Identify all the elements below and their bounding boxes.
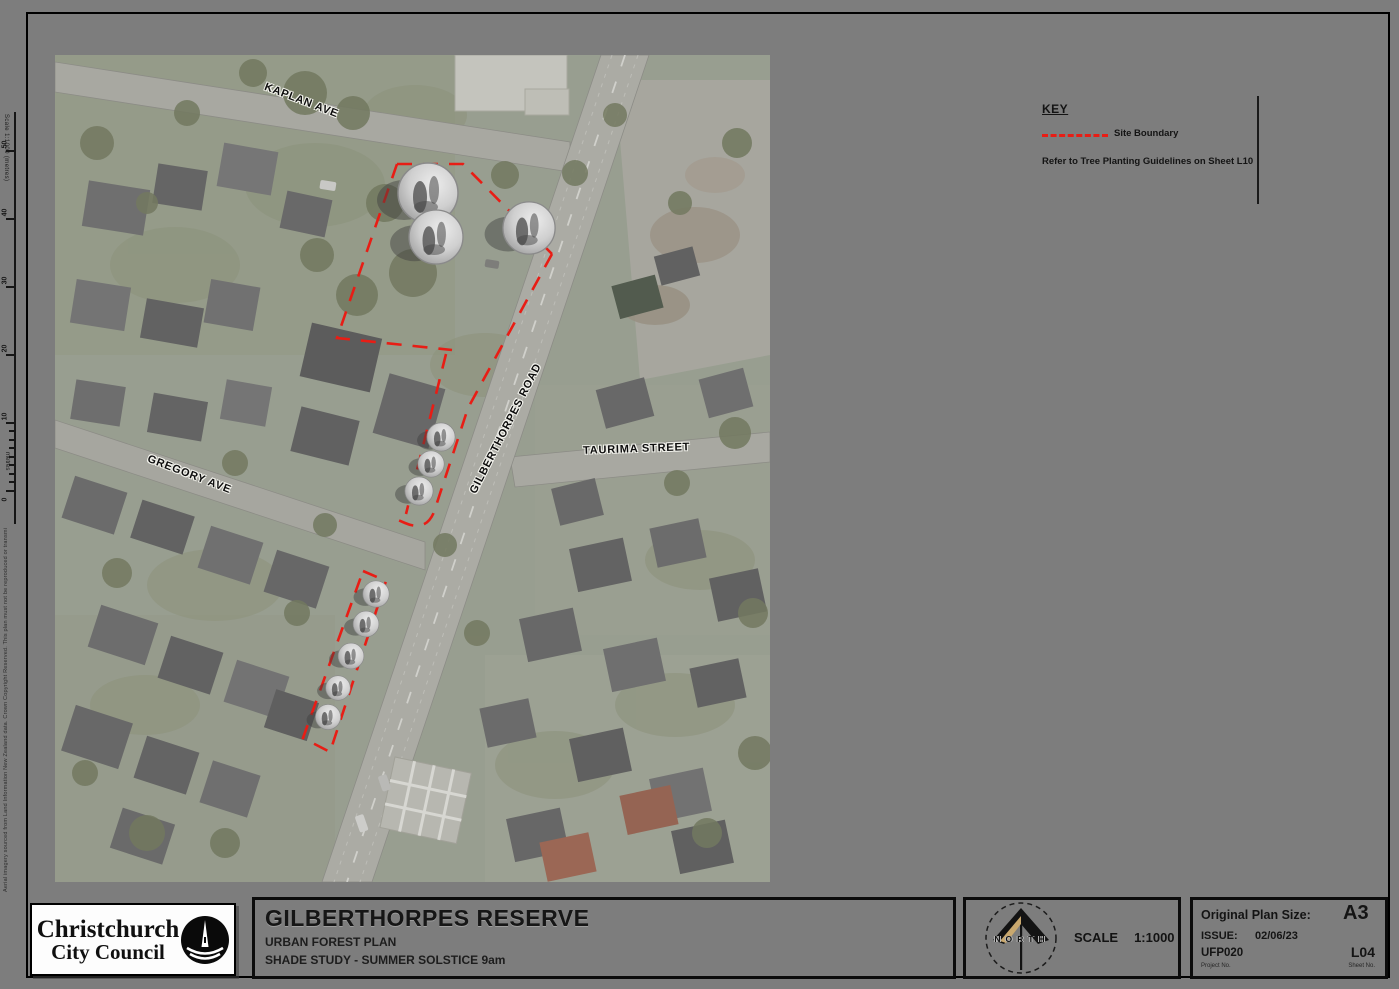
north-scale-block: NORTH SCALE 1:1000 (963, 897, 1181, 979)
scale-value: 1:1000 (1134, 930, 1174, 945)
page-title: GILBERTHORPES RESERVE (265, 905, 953, 932)
title-block: GILBERTHORPES RESERVE URBAN FOREST PLAN … (252, 897, 956, 979)
key-title: KEY (1042, 102, 1068, 116)
plan-size-label: Original Plan Size: (1201, 908, 1311, 922)
scale-bar-label: 40 (2, 204, 9, 222)
key-note: Refer to Tree Planting Guidelines on She… (1042, 156, 1253, 167)
ccc-logo: Christchurch City Council (30, 903, 236, 976)
plan-info-block: Original Plan Size: A3 ISSUE: 02/06/23 U… (1190, 897, 1388, 979)
logo-line2: City Council (36, 942, 180, 963)
site-boundary-symbol (1042, 134, 1108, 137)
scale-bar-label: 0 (2, 491, 9, 509)
scale-bar-label: 30 (2, 272, 9, 290)
project-number: UFP020 (1201, 947, 1243, 959)
scale-bar-label: 50 (2, 136, 9, 154)
key-divider (1257, 96, 1259, 204)
scale-label: SCALE (1074, 930, 1118, 945)
plan-sheet: Scale 1:1000 (metres) 50 40 30 20 10 0 m… (0, 0, 1399, 989)
plan-size-value: A3 (1343, 902, 1369, 925)
issue-label: ISSUE: (1201, 930, 1238, 942)
sheet-name: SHADE STUDY - SUMMER SOLSTICE 9am (265, 953, 953, 967)
scale-bar-label: 10 (2, 408, 9, 426)
scale-bar-unit: metres (4, 452, 10, 470)
scale-bar-label: 20 (2, 340, 9, 358)
scale-bar-line (14, 112, 16, 524)
site-boundary-label: Site Boundary (1114, 128, 1178, 139)
page-subtitle: URBAN FOREST PLAN (265, 935, 953, 949)
issue-date: 02/06/23 (1255, 930, 1298, 942)
logo-line1: Christchurch (36, 917, 180, 942)
ccc-logo-icon (180, 915, 230, 965)
sheet-number-label: Sheet No. (1348, 963, 1375, 969)
project-number-label: Project No. (1201, 963, 1231, 969)
aerial-map: KAPLAN AVE GILBERTHORPES ROAD TAURIMA ST… (55, 55, 770, 882)
vertical-disclaimer-text: Aerial imagery sourced from Land Informa… (3, 528, 9, 892)
map-key: KEY Site Boundary Refer to Tree Planting… (1038, 96, 1262, 208)
north-label: NORTH (980, 934, 1064, 944)
sheet-number: L04 (1351, 944, 1375, 960)
